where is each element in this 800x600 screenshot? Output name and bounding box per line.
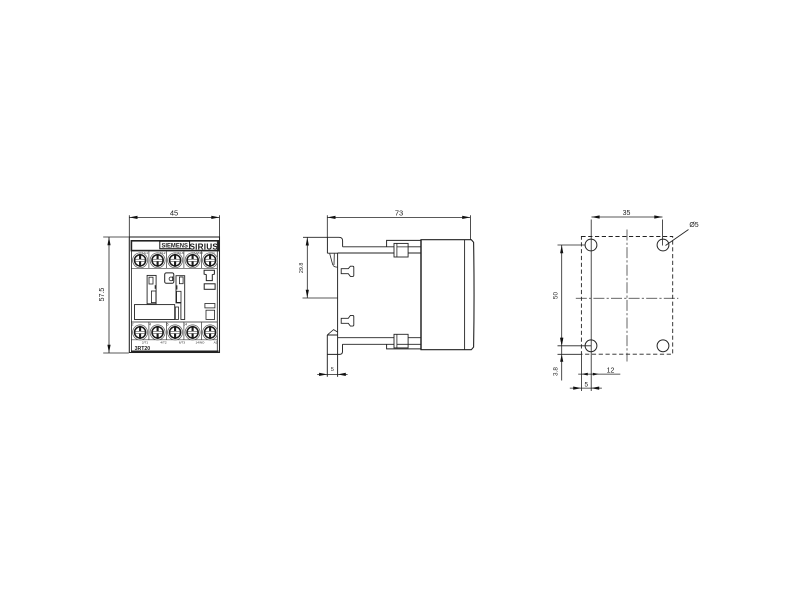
svg-text:4/T2: 4/T2	[160, 341, 166, 345]
svg-text:A2: A2	[214, 341, 218, 345]
svg-text:6: 6	[167, 322, 169, 326]
svg-text:29.8: 29.8	[299, 263, 305, 274]
svg-text:SIEMENS: SIEMENS	[161, 242, 188, 249]
svg-text:5: 5	[331, 367, 334, 373]
svg-text:57.5: 57.5	[99, 288, 106, 302]
svg-text:2: 2	[132, 322, 134, 326]
svg-text:50: 50	[553, 292, 560, 300]
svg-text:12: 12	[607, 367, 615, 374]
svg-text:5: 5	[585, 381, 589, 388]
svg-text:35: 35	[623, 210, 631, 217]
svg-text:4: 4	[149, 322, 151, 326]
svg-text:6/T3: 6/T3	[179, 341, 185, 345]
svg-text:2/T1: 2/T1	[142, 341, 148, 345]
svg-text:SIRIUS: SIRIUS	[190, 242, 219, 251]
svg-text:3.8: 3.8	[553, 367, 560, 376]
svg-text:45: 45	[170, 209, 178, 218]
svg-text:73: 73	[395, 209, 403, 218]
svg-text:14/NO: 14/NO	[196, 341, 206, 345]
svg-text:Ø5: Ø5	[689, 222, 698, 229]
